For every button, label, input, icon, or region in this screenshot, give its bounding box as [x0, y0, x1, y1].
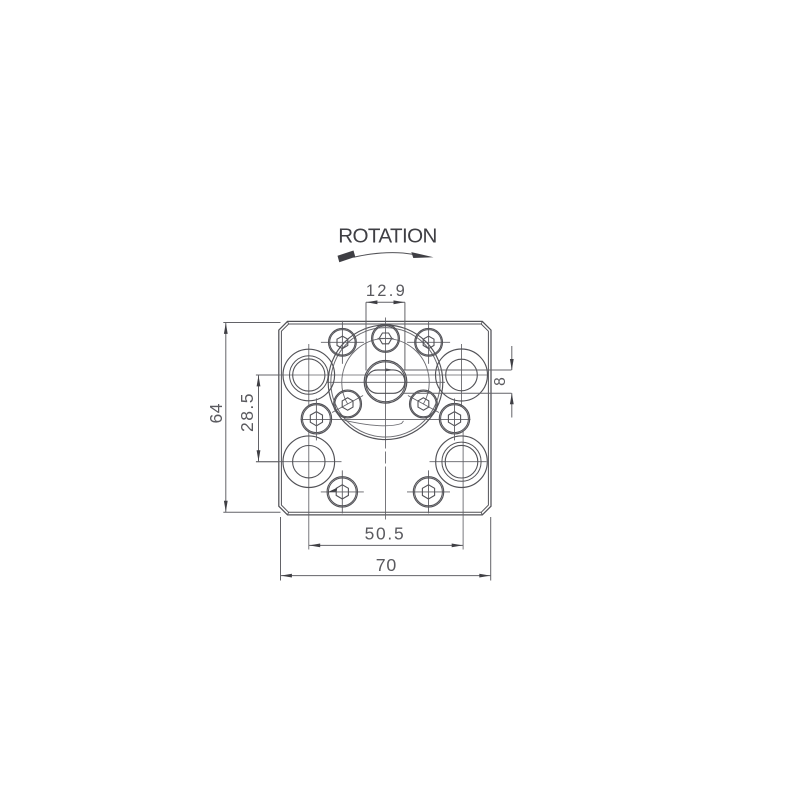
svg-text:12.9: 12.9 — [366, 282, 407, 300]
svg-text:70: 70 — [376, 555, 397, 575]
svg-text:8: 8 — [492, 377, 509, 386]
svg-text:ROTATION: ROTATION — [338, 225, 437, 248]
svg-text:64: 64 — [206, 403, 226, 423]
svg-text:28.5: 28.5 — [237, 392, 257, 432]
svg-text:50.5: 50.5 — [365, 523, 406, 543]
